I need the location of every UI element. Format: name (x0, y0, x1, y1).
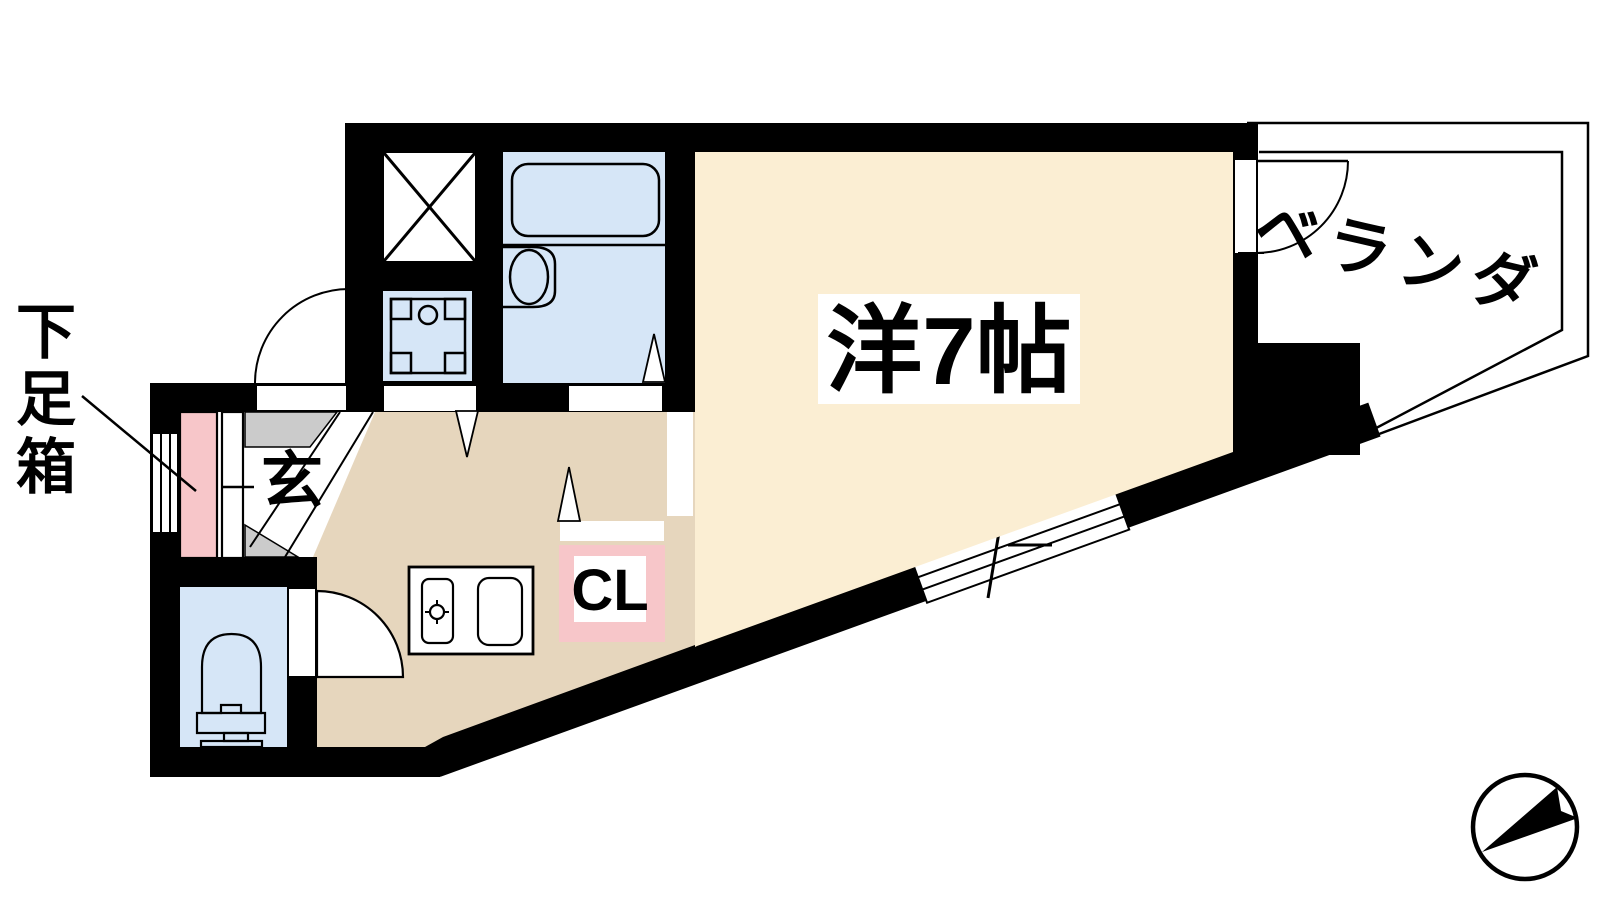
shoe-box-front (222, 412, 243, 558)
closet: CL (559, 545, 665, 642)
north-arrow-icon (1473, 775, 1578, 879)
wall-top (693, 123, 1258, 152)
main-room: 洋7帖 (818, 294, 1080, 405)
washer-area (383, 291, 472, 381)
kitchen-counter (409, 567, 533, 654)
floor-plan-page: 玄 CL 洋7帖 (0, 0, 1600, 900)
washer-opening (384, 386, 476, 411)
floor-plan-canvas: 玄 CL 洋7帖 (0, 0, 1600, 900)
shoe-box (180, 412, 217, 558)
closet-opening (560, 521, 664, 541)
toilet-opening (289, 589, 315, 676)
entry-opening (257, 386, 346, 410)
shoe-box-label-char1: 下 (16, 299, 76, 366)
entry-window (152, 433, 178, 533)
bathroom (503, 152, 665, 383)
shoe-box-label-char2: 足 (16, 366, 76, 433)
kitchen-basin (478, 578, 522, 645)
shoe-box-label-char3: 箱 (16, 434, 76, 501)
main-room-label: 洋7帖 (826, 298, 1071, 405)
genkan-label: 玄 (261, 447, 323, 516)
room-hall-opening (667, 412, 693, 516)
pipe-space-x-icon (384, 153, 475, 261)
bathroom-opening (569, 386, 662, 411)
closet-label: CL (571, 558, 648, 623)
wall-balcony-corner (1233, 343, 1360, 455)
